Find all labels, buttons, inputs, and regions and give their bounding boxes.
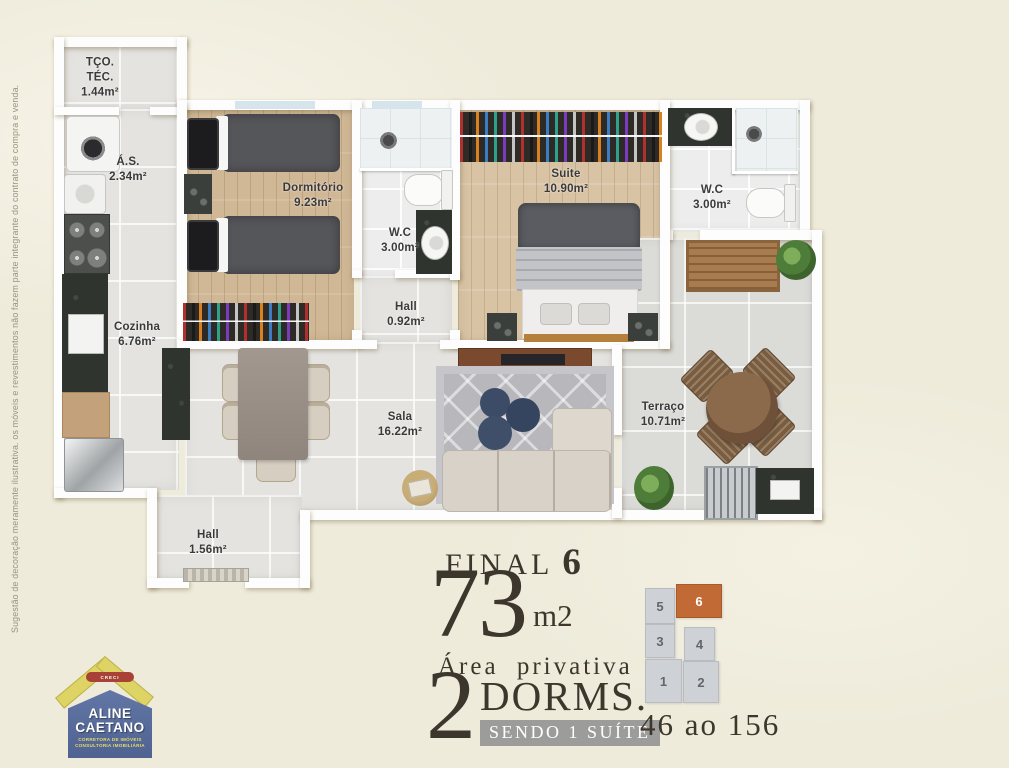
- kitchen-counter: [62, 274, 108, 392]
- units-range: 46 ao 156: [640, 707, 780, 743]
- nightstand: [628, 313, 658, 341]
- side-table: [402, 470, 438, 506]
- dorms-number: 2: [426, 664, 476, 746]
- window: [235, 101, 315, 109]
- creci-banner: CRECI: [86, 672, 134, 682]
- keyplan-unit-5: 5: [645, 588, 675, 624]
- terrace-sink: [770, 480, 800, 500]
- room-label-as: Á.S. 2.34m²: [109, 155, 147, 185]
- books: [408, 478, 433, 498]
- keyplan-unit-3: 3: [645, 624, 675, 658]
- shower-glass: [732, 108, 735, 174]
- flyer: TÇO. TÉC. 1.44m² Á.S. 2.34m² Dormitório …: [0, 0, 1009, 768]
- keyplan-unit-4: 4: [684, 627, 715, 661]
- vanity: [416, 210, 452, 274]
- terrace-table: [706, 372, 778, 444]
- shower-head-icon: [746, 126, 762, 142]
- terrace-counter: [756, 468, 814, 514]
- logo-subtitle2: CONSULTORIA IMOBILIÁRIA: [75, 743, 145, 748]
- logo-name-line2: CAETANO: [75, 721, 144, 735]
- room-label-tco-tec: TÇO. TÉC. 1.44m²: [81, 56, 119, 101]
- toilet: [746, 188, 786, 218]
- logo-subtitle1: CORRETORA DE IMÓVEIS: [78, 737, 141, 742]
- sink: [421, 226, 449, 260]
- area-line: 73 m2: [430, 562, 573, 644]
- doormat: [183, 568, 249, 582]
- keyplan-unit-6: 6: [676, 584, 722, 618]
- tv: [501, 354, 565, 365]
- shower-head-icon: [380, 132, 397, 149]
- dorms-line: 2 DORMS. SENDO 1 SUÍTE: [426, 664, 660, 746]
- plant: [634, 466, 674, 510]
- floor-tco-tec: [62, 45, 179, 109]
- vanity: [668, 108, 732, 146]
- dining-table: [238, 348, 308, 460]
- sofa: [442, 450, 612, 512]
- suite-banner: SENDO 1 SUÍTE: [480, 720, 660, 746]
- keyplan-unit-1: 1: [645, 659, 682, 703]
- kitchen-sink: [68, 314, 104, 354]
- shower-area: [736, 108, 798, 172]
- wall-segment: [54, 37, 187, 47]
- single-bed: [222, 216, 340, 274]
- room-label-wc-social: W.C 3.00m²: [381, 226, 419, 256]
- toilet-tank: [441, 170, 453, 210]
- room-label-terraco: Terraço 10.71m²: [641, 400, 685, 430]
- keyplan-unit-2: 2: [683, 661, 719, 703]
- agency-logo: CRECI ALINE CAETANO CORRETORA DE IMÓVEIS…: [56, 654, 164, 764]
- disclaimer-text: Sugestão de decoração meramente ilustrat…: [10, 85, 20, 633]
- stove: [64, 214, 110, 274]
- bench: [686, 240, 780, 292]
- refrigerator: [64, 438, 124, 492]
- room-label-sala: Sala 16.22m²: [378, 410, 422, 440]
- plant: [776, 240, 816, 280]
- suite-closet: [460, 112, 662, 162]
- toilet: [404, 174, 444, 206]
- room-label-suite: Suite 10.90m²: [544, 167, 588, 197]
- wall-segment: [300, 510, 310, 588]
- wardrobe: [183, 303, 309, 341]
- wall-segment: [700, 230, 812, 240]
- double-bed: [516, 203, 642, 343]
- room-label-wc-suite: W.C 3.00m²: [693, 183, 731, 213]
- laundry-sink: [64, 174, 106, 214]
- wall-segment: [352, 270, 362, 278]
- wall-segment: [147, 488, 157, 588]
- toilet-tank: [784, 184, 796, 222]
- shower-glass: [732, 171, 798, 174]
- nightstand: [184, 174, 212, 214]
- nightstand: [487, 313, 517, 341]
- counter-wood: [62, 392, 110, 438]
- kitchen-island: [162, 348, 190, 440]
- logo-name-line1: ALINE: [89, 707, 132, 721]
- dorms-label: DORMS.: [480, 676, 660, 717]
- single-bed: [222, 114, 340, 172]
- pillow: [187, 118, 219, 170]
- barbecue-grill: [704, 466, 758, 520]
- coffee-table: [478, 416, 512, 450]
- room-label-hall-intimo: Hall 0.92m²: [387, 300, 425, 330]
- room-label-cozinha: Cozinha 6.76m²: [114, 320, 160, 350]
- shower-area: [360, 108, 452, 168]
- wall-segment: [800, 100, 810, 240]
- shower-glass: [360, 168, 452, 171]
- sink: [684, 113, 718, 141]
- pillow: [187, 220, 219, 272]
- room-label-hall-entrada: Hall 1.56m²: [189, 528, 227, 558]
- room-label-dormitorio: Dormitório 9.23m²: [283, 181, 344, 211]
- area-value: 73: [430, 562, 526, 644]
- wall-segment: [54, 107, 119, 115]
- area-unit: m2: [533, 598, 573, 634]
